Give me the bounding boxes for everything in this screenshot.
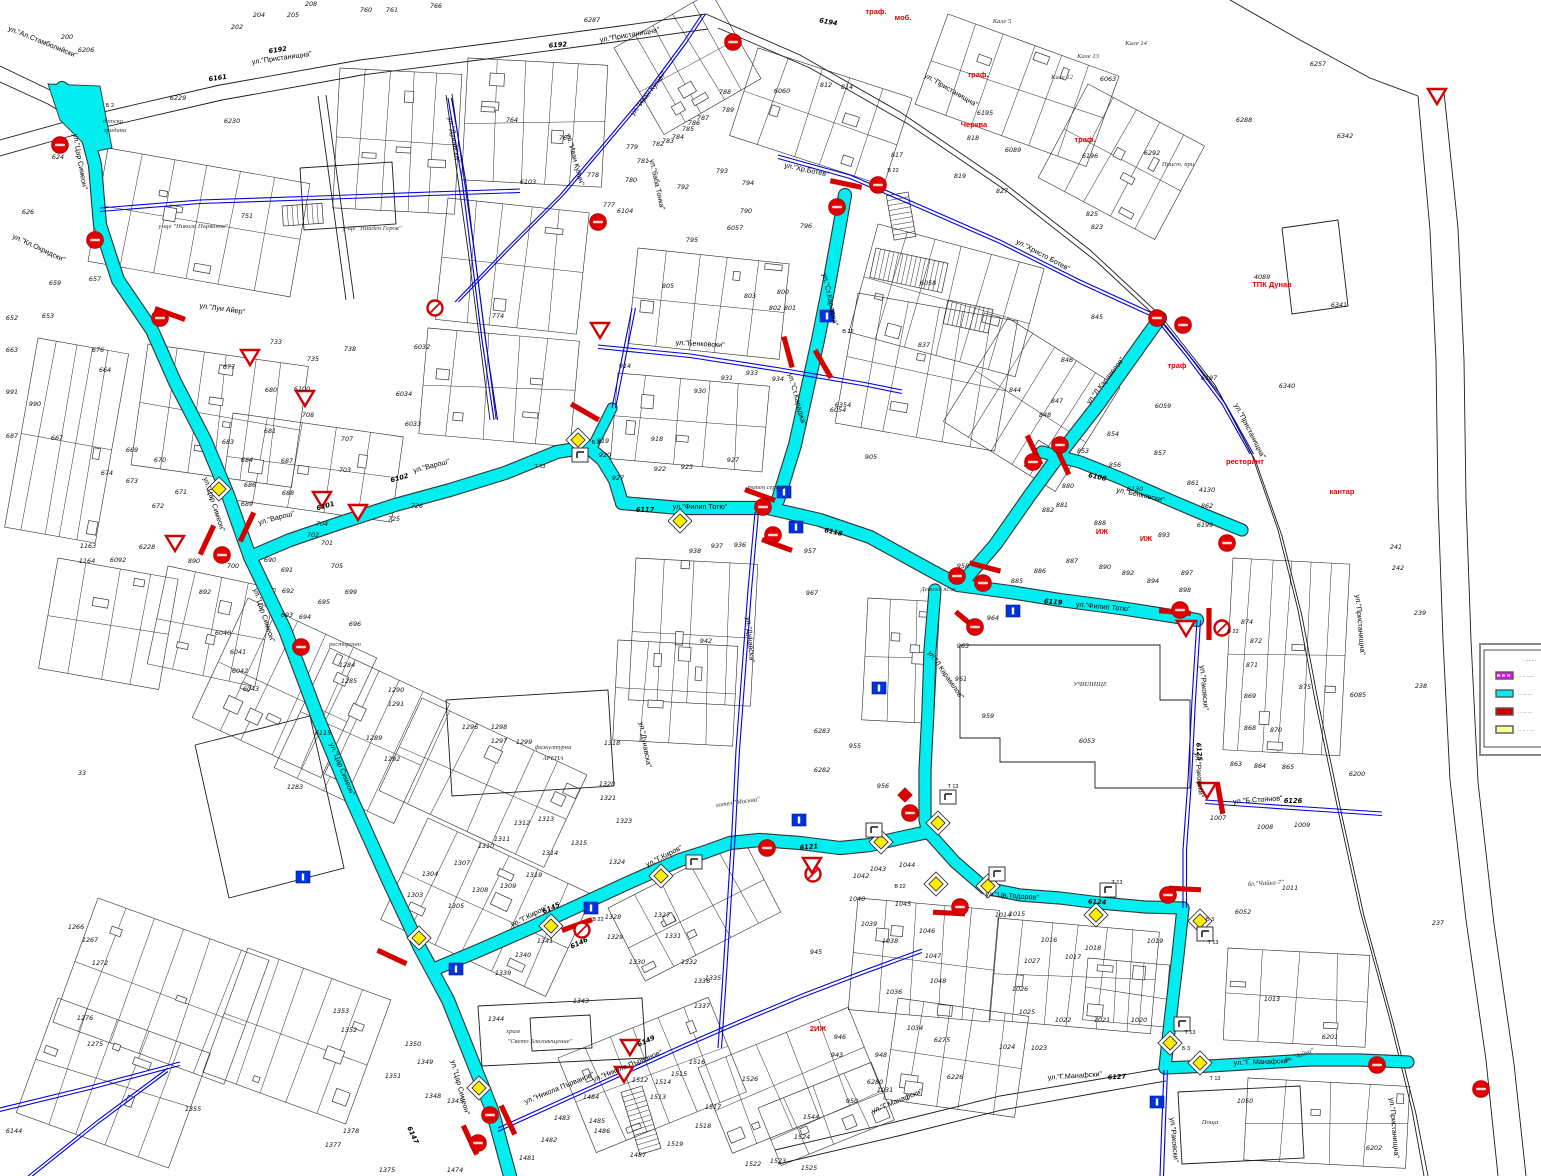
parcel-number: 1048 <box>930 977 946 985</box>
no-entry-bar <box>768 534 778 536</box>
parcel-number: 760 <box>360 6 372 14</box>
no-entry-bar <box>832 206 842 208</box>
legend-item-label: ·· ··· ··· <box>1518 692 1533 697</box>
parcel-number: 825 <box>1086 210 1098 218</box>
parcel-number: 890 <box>188 557 200 565</box>
parcel-number: 796 <box>800 222 812 230</box>
parcel-number: 6063 <box>1100 75 1116 83</box>
parcel-number: 6034 <box>396 390 412 398</box>
parcel-number: 702 <box>307 531 319 539</box>
parcel-number: 887 <box>1066 557 1078 565</box>
parcel-number: 1349 <box>417 1058 433 1066</box>
info-sign-glyph <box>826 313 828 320</box>
parcel-number: 33 <box>78 769 86 777</box>
no-entry-bar <box>1178 324 1188 326</box>
poi-label-red: ИЖ <box>1140 534 1152 543</box>
parcel-number: 914 <box>619 362 631 370</box>
parcel-number: 677 <box>223 363 235 371</box>
parcel-number: 1036 <box>886 988 902 996</box>
parcel-number: 653 <box>42 312 54 320</box>
parcel-number: 1330 <box>629 958 645 966</box>
parcel-number: 1016 <box>1041 936 1057 944</box>
parcel-number: 705 <box>331 562 343 570</box>
parcel-number: 1348 <box>425 1092 441 1100</box>
parcel-number: 844 <box>1009 386 1021 394</box>
parcel-number: 957 <box>804 547 816 555</box>
parcel-number: 1524 <box>794 1133 810 1141</box>
parcel-number: 942 <box>700 637 712 645</box>
parcel-number: 854 <box>1107 430 1119 438</box>
parcel-number: 6288 <box>1236 116 1252 124</box>
parcel-number: 868 <box>1244 724 1256 732</box>
parcel-number: 990 <box>29 400 41 408</box>
parcel-block <box>203 948 391 1124</box>
parcel-number: 1020 <box>1131 1016 1147 1024</box>
no-entry-bar <box>1222 542 1232 544</box>
parcel-number: 847 <box>1051 397 1063 405</box>
parcel-number: 663 <box>6 346 18 354</box>
street-centerline <box>616 308 636 408</box>
parcel-number: 689 <box>241 500 253 508</box>
parcel-number: 1350 <box>405 1040 421 1048</box>
no-entry-bar <box>873 184 883 186</box>
parcel-number: 898 <box>1179 586 1191 594</box>
sign-code-label: Б 3 <box>1206 917 1214 923</box>
poi-label: физкултурна <box>535 744 572 751</box>
no-entry-bar <box>473 1142 483 1144</box>
parcel-number: 1013 <box>1264 995 1280 1003</box>
sign-plate <box>1197 927 1213 941</box>
parcel-number: 1007 <box>1210 814 1226 822</box>
parcel-number: 1518 <box>695 1122 711 1130</box>
street-name-label: ул."Раковски" <box>1168 1117 1181 1163</box>
street-name-label: ул."Филип Тотю" <box>673 502 728 511</box>
street-name-label: ул."Ал.Стамболийски" <box>7 24 79 60</box>
no-entry-bar <box>978 582 988 584</box>
parcel-number: 1513 <box>650 1093 666 1101</box>
parcel-number: 1340 <box>515 951 531 959</box>
highlight-street <box>770 195 845 508</box>
building-outline <box>960 645 1190 788</box>
poi-label: Кале 13 <box>1076 53 1100 60</box>
parcel-number: 1018 <box>1085 944 1101 952</box>
stop-line-sign <box>376 948 407 966</box>
road-number: 6192 <box>548 40 567 50</box>
poi-label-red: ресторант <box>1226 457 1264 466</box>
parcel-number: 735 <box>307 355 319 363</box>
parcel-number: 6032 <box>414 343 430 351</box>
street-centerline <box>1150 312 1250 454</box>
street-centerline <box>1160 1070 1164 1176</box>
parcel-number: 817 <box>891 151 903 159</box>
parcel-number: 922 <box>654 465 666 473</box>
parcel-number: 1522 <box>745 1160 761 1168</box>
parcel-number: 937 <box>711 542 723 550</box>
poi-label: "Свето Благовещение" <box>508 1038 573 1045</box>
parcel-number: 938 <box>689 547 701 555</box>
parcel-number: 780 <box>625 176 637 184</box>
parcel-number: 202 <box>231 23 243 31</box>
no-entry-bar <box>1028 461 1038 463</box>
street-name-label: ул."Варош" <box>257 508 296 526</box>
parcel-number: 1297 <box>491 737 507 745</box>
parcel-number: 673 <box>126 477 138 485</box>
highlight-street <box>928 832 1183 908</box>
no-entry-bar <box>1055 444 1065 446</box>
sign-code-label: Б 2 <box>106 103 114 109</box>
parcel-number: 1526 <box>742 1075 758 1083</box>
parcel-number: 869 <box>1244 692 1256 700</box>
sign-code-label: Т 13 <box>1184 1030 1195 1036</box>
parcel-number: 918 <box>651 435 663 443</box>
no-entry-bar <box>1476 1088 1486 1090</box>
parcel-number: 1008 <box>1257 823 1273 831</box>
parcel-number: 964 <box>987 614 999 622</box>
parcel-number: 1337 <box>694 1002 710 1010</box>
parcel-number: 242 <box>1392 564 1404 572</box>
parcel-number: 1296 <box>462 723 478 731</box>
no-entry-bar <box>155 317 165 319</box>
parcel-number: 699 <box>345 588 357 596</box>
parcel-number: 6280 <box>867 1078 883 1086</box>
parcel-number: 1320 <box>599 780 615 788</box>
parcel-number: 870 <box>1270 726 1282 734</box>
parcel-number: 764 <box>506 116 518 124</box>
parcel-number: 1311 <box>494 835 510 843</box>
parcel-number: 1009 <box>1294 821 1310 829</box>
parcel-number: 1299 <box>516 738 532 746</box>
road-number: 6121 <box>799 842 818 852</box>
stop-line-sign <box>781 336 794 368</box>
parcel-number: 800 <box>777 288 789 296</box>
parcel-number: 761 <box>386 6 398 14</box>
sign-code-label: Б 3 <box>1182 1046 1190 1052</box>
parcel-number: 894 <box>1147 577 1159 585</box>
sign-plate <box>686 855 702 869</box>
parcel-number: 6228 <box>139 543 155 551</box>
parcel-number: 814 <box>841 83 853 91</box>
parcel-block <box>39 558 179 689</box>
parcel-number: 874 <box>1241 618 1253 626</box>
sign-code-label: B 22 <box>1227 629 1238 635</box>
sign-code-label: Т 13 <box>947 784 958 790</box>
parcel-number: 6053 <box>1079 737 1095 745</box>
parcel-number: 1021 <box>1094 1016 1110 1024</box>
parcel-number: 1303 <box>407 891 423 899</box>
parcel-number: 823 <box>1091 223 1103 231</box>
parcel-number: 789 <box>722 106 734 114</box>
parcel-number: 948 <box>875 1051 887 1059</box>
parcel-number: 1484 <box>583 1093 599 1101</box>
parcel-number: 1512 <box>632 1076 648 1084</box>
parcel-number: 6041 <box>230 648 246 656</box>
parcel-number: 704 <box>316 520 328 528</box>
parcel-number: 726 <box>411 502 423 510</box>
parcel-number: 626 <box>22 208 34 216</box>
parcel-number: 886 <box>1034 567 1046 575</box>
parcel-number: 6033 <box>405 420 421 428</box>
street-name-label: ул."Иван Кулин" <box>628 69 668 117</box>
parcel-number: 1164 <box>79 557 95 565</box>
street-name-label: ул."Луи Айер" <box>199 301 246 316</box>
road-number: 6149 <box>636 1034 656 1049</box>
parcel-number: 1308 <box>472 886 488 894</box>
parcel-block <box>333 68 462 214</box>
parcel-number: 793 <box>716 167 728 175</box>
road-casing <box>1418 96 1498 1176</box>
poi-label-red: траф. <box>865 7 886 16</box>
parcel-number: 1318 <box>604 739 620 747</box>
parcel-number: 1024 <box>999 1043 1015 1051</box>
parcel-number: 1315 <box>571 839 587 847</box>
poi-label: детска <box>103 118 124 125</box>
poi-label: бл."Чайка-7" <box>1248 879 1285 888</box>
parcel-number: 963 <box>957 642 969 650</box>
street-centerline <box>1164 1070 1168 1176</box>
parcel-number: 1483 <box>554 1114 570 1122</box>
parcel-number: 1027 <box>1024 957 1040 965</box>
parcel-block <box>611 373 770 472</box>
parcel-number: 950 <box>846 1097 858 1105</box>
parcel-number: 241 <box>1390 543 1402 551</box>
parcel-number: 1047 <box>925 952 941 960</box>
parcel-block <box>1223 948 1370 1047</box>
parcel-number: 1285 <box>341 677 357 685</box>
parcel-number: 802 <box>769 304 781 312</box>
parcel-number: 1046 <box>919 927 935 935</box>
parcel-number: 6089 <box>1005 146 1021 154</box>
parcel-number: 674 <box>101 469 113 477</box>
parcel-number: 1516 <box>689 1058 705 1066</box>
no-entry-bar <box>905 812 915 814</box>
parcel-number: 1307 <box>454 859 470 867</box>
map-viewport[interactable]: Т 13Т 13Т 13Т 13Т 13Т 13B 22B 22B 22В 22… <box>0 0 1541 1176</box>
parcel-number: 6275 <box>934 1036 950 1044</box>
parcel-number: 6340 <box>1279 382 1295 390</box>
street-name-label: ул."Раковски" <box>1198 665 1211 711</box>
legend-item-label: ·· ·· · ··· <box>1518 728 1534 733</box>
poi-label: Прист. при <box>1161 161 1195 168</box>
parcel-number: 1289 <box>366 734 382 742</box>
parcel-number: 1515 <box>671 1070 687 1078</box>
parcel-number: 1011 <box>1282 884 1298 892</box>
parcel-number: 1267 <box>82 936 98 944</box>
road-casing <box>1230 0 1418 96</box>
road-number: 6102 <box>390 472 410 485</box>
parcel-block <box>629 558 758 706</box>
parcel-number: 930 <box>694 387 706 395</box>
sign-code-label: B 22 <box>894 884 905 890</box>
yield-sign <box>1177 621 1195 636</box>
legend-swatch-3 <box>1496 726 1513 733</box>
building-outline <box>1282 220 1348 314</box>
parcel-number: 6040 <box>215 629 231 637</box>
parcel-number: 6092 <box>110 556 126 564</box>
poi-label-red: траф. <box>967 70 988 79</box>
parcel-number: 690 <box>264 556 276 564</box>
parcel-number: 1514 <box>655 1078 671 1086</box>
parcel-number: 857 <box>1154 449 1166 457</box>
street-name-label: ул."Дунавска" <box>744 617 757 664</box>
parcel-number: 927 <box>727 456 739 464</box>
parcel-number: 676 <box>92 346 104 354</box>
info-sign-glyph <box>455 966 457 973</box>
parcel-number: 696 <box>349 620 361 628</box>
road-number: 6147 <box>405 1125 420 1145</box>
parcel-number: 1038 <box>882 937 898 945</box>
info-sign-glyph <box>798 817 800 824</box>
parcel-number: 687 <box>281 457 293 465</box>
no-entry-bar <box>970 626 980 628</box>
parcel-number: 239 <box>1414 609 1426 617</box>
parcel-number: 934 <box>772 375 784 383</box>
parcel-number: 1328 <box>605 913 621 921</box>
parcel-number: 1015 <box>1009 910 1025 918</box>
parcel-number: 1329 <box>607 933 623 941</box>
parcel-number: 6200 <box>1349 770 1365 778</box>
no-entry-bar <box>1152 317 1162 319</box>
sign-code-label: В 22 <box>592 917 603 923</box>
parcel-number: 6341 <box>1331 301 1347 309</box>
poi-label: ресторант <box>328 641 361 648</box>
parcel-block <box>1244 1078 1410 1168</box>
parcel-number: 919 <box>597 437 609 445</box>
parcel-number: 837 <box>918 341 930 349</box>
parcel-number: 6292 <box>1144 149 1160 157</box>
parcel-number: 881 <box>1056 501 1068 509</box>
parcel-number: 1309 <box>500 882 516 890</box>
parcel-number: 691 <box>281 566 293 574</box>
parcel-number: 1351 <box>385 1072 401 1080</box>
parcel-number: 670 <box>154 456 166 464</box>
parcel-number: 1331 <box>665 932 681 940</box>
parcel-number: 1321 <box>600 794 616 802</box>
yield-sign <box>591 323 609 338</box>
sign-code-label: Т 13 <box>1209 1076 1220 1082</box>
parcel-number: 6042 <box>232 667 248 675</box>
parcel-number: 664 <box>99 366 111 374</box>
parcel-number: 1025 <box>1019 1008 1035 1016</box>
poi-label: Поща <box>1201 1119 1219 1126</box>
poi-label: Детски ясли <box>920 586 957 593</box>
cadastral-map: Т 13Т 13Т 13Т 13Т 13Т 13B 22B 22B 22В 22… <box>0 0 1541 1176</box>
parcel-number: 1034 <box>907 1024 923 1032</box>
parcel-number: 6060 <box>774 87 790 95</box>
road-number: 6127 <box>1108 1073 1127 1082</box>
poi-label-red: Черква <box>961 120 988 129</box>
parcel-number: 6043 <box>243 685 259 693</box>
parcel-number: 1284 <box>339 661 355 669</box>
parcel-number: 955 <box>849 742 861 750</box>
parcel-number: 1336 <box>694 977 710 985</box>
parcel-number: 6057 <box>727 224 743 232</box>
parcel-number: 1377 <box>325 1141 341 1149</box>
sign-code-label: B 22 <box>887 168 898 174</box>
parcel-number: 701 <box>321 539 333 547</box>
parcel-block <box>613 640 738 746</box>
parcel-number: 1045 <box>895 900 911 908</box>
parcel-number: 885 <box>1011 577 1023 585</box>
parcel-number: 6287 <box>584 16 600 24</box>
parcel-number: 1544 <box>803 1113 819 1121</box>
parcel-number: 6059 <box>1155 402 1171 410</box>
parcel-number: 667 <box>51 434 63 442</box>
legend-swatch-1 <box>1496 690 1513 697</box>
parcel-number: 897 <box>1181 569 1193 577</box>
parcel-number: 788 <box>719 88 731 96</box>
parcel-block <box>53 898 269 1084</box>
street-centerline <box>718 512 755 1048</box>
street-centerline <box>722 512 759 1048</box>
info-sign-glyph <box>590 905 592 912</box>
parcel-number: 738 <box>344 345 356 353</box>
parcel-number: 795 <box>686 236 698 244</box>
parcel-number: 818 <box>967 134 979 142</box>
street-centerline <box>1205 804 1382 816</box>
parcel-number: 1352 <box>341 1026 357 1034</box>
parcel-number: 1019 <box>1147 937 1163 945</box>
no-entry-bar <box>1175 609 1185 611</box>
parcel-number: 1040 <box>849 895 865 903</box>
parcel-number: 1486 <box>594 1127 610 1135</box>
parcel-number: 6282 <box>814 766 830 774</box>
poi-label: Кале 14 <box>1124 40 1148 47</box>
parcel-block <box>435 198 589 334</box>
poi-label: Кале 5 <box>992 18 1012 25</box>
parcel-number: 1042 <box>853 872 869 880</box>
parcel-number: 945 <box>810 948 822 956</box>
parcel-number: 692 <box>282 587 294 595</box>
red-diamond-sign <box>897 787 913 803</box>
parcel-number: 6199 <box>1197 521 1213 529</box>
road-casing <box>326 95 354 299</box>
parcel-number: 6342 <box>1337 132 1353 140</box>
no-entry-bar <box>728 41 738 43</box>
no-entry-bar <box>762 847 772 849</box>
street-name-label: ул."Варош" <box>412 456 451 474</box>
parcel-number: 1050 <box>1237 1097 1253 1105</box>
parcel-number: 708 <box>302 411 314 419</box>
no-entry-bar <box>955 906 965 908</box>
no-entry-bar <box>55 144 65 146</box>
parcel-number: 6196 <box>1082 152 1098 160</box>
info-sign-glyph <box>795 524 797 531</box>
no-entry-bar <box>217 554 227 556</box>
parcel-number: 6052 <box>1235 908 1251 916</box>
info-sign-glyph <box>1012 608 1014 615</box>
parcel-number: 681 <box>264 427 276 435</box>
parcel-number: 779 <box>626 143 638 151</box>
parcel-number: 6085 <box>1350 691 1366 699</box>
sign-code-label: Т 13 <box>534 464 545 470</box>
parcel-number: 856 <box>1109 461 1121 469</box>
parcel-number: 1275 <box>87 1040 103 1048</box>
sign-plate <box>940 790 956 804</box>
parcel-number: 707 <box>341 435 353 443</box>
parcel-number: 659 <box>49 279 61 287</box>
parcel-number: 238 <box>1415 682 1427 690</box>
road-number: 6146 <box>569 936 589 951</box>
poi-label: храм <box>505 1028 521 1035</box>
street-name-label: ул."Дунавска" <box>637 721 654 768</box>
parcel-number: 1298 <box>491 723 507 731</box>
parcel-number: 687 <box>6 432 18 440</box>
parcel-number: 680 <box>265 386 277 394</box>
poi-label-red: траф <box>1168 361 1187 370</box>
highlight-street <box>768 508 958 585</box>
stop-line-sign <box>198 524 216 555</box>
parcel-number: 1031 <box>877 1086 893 1094</box>
